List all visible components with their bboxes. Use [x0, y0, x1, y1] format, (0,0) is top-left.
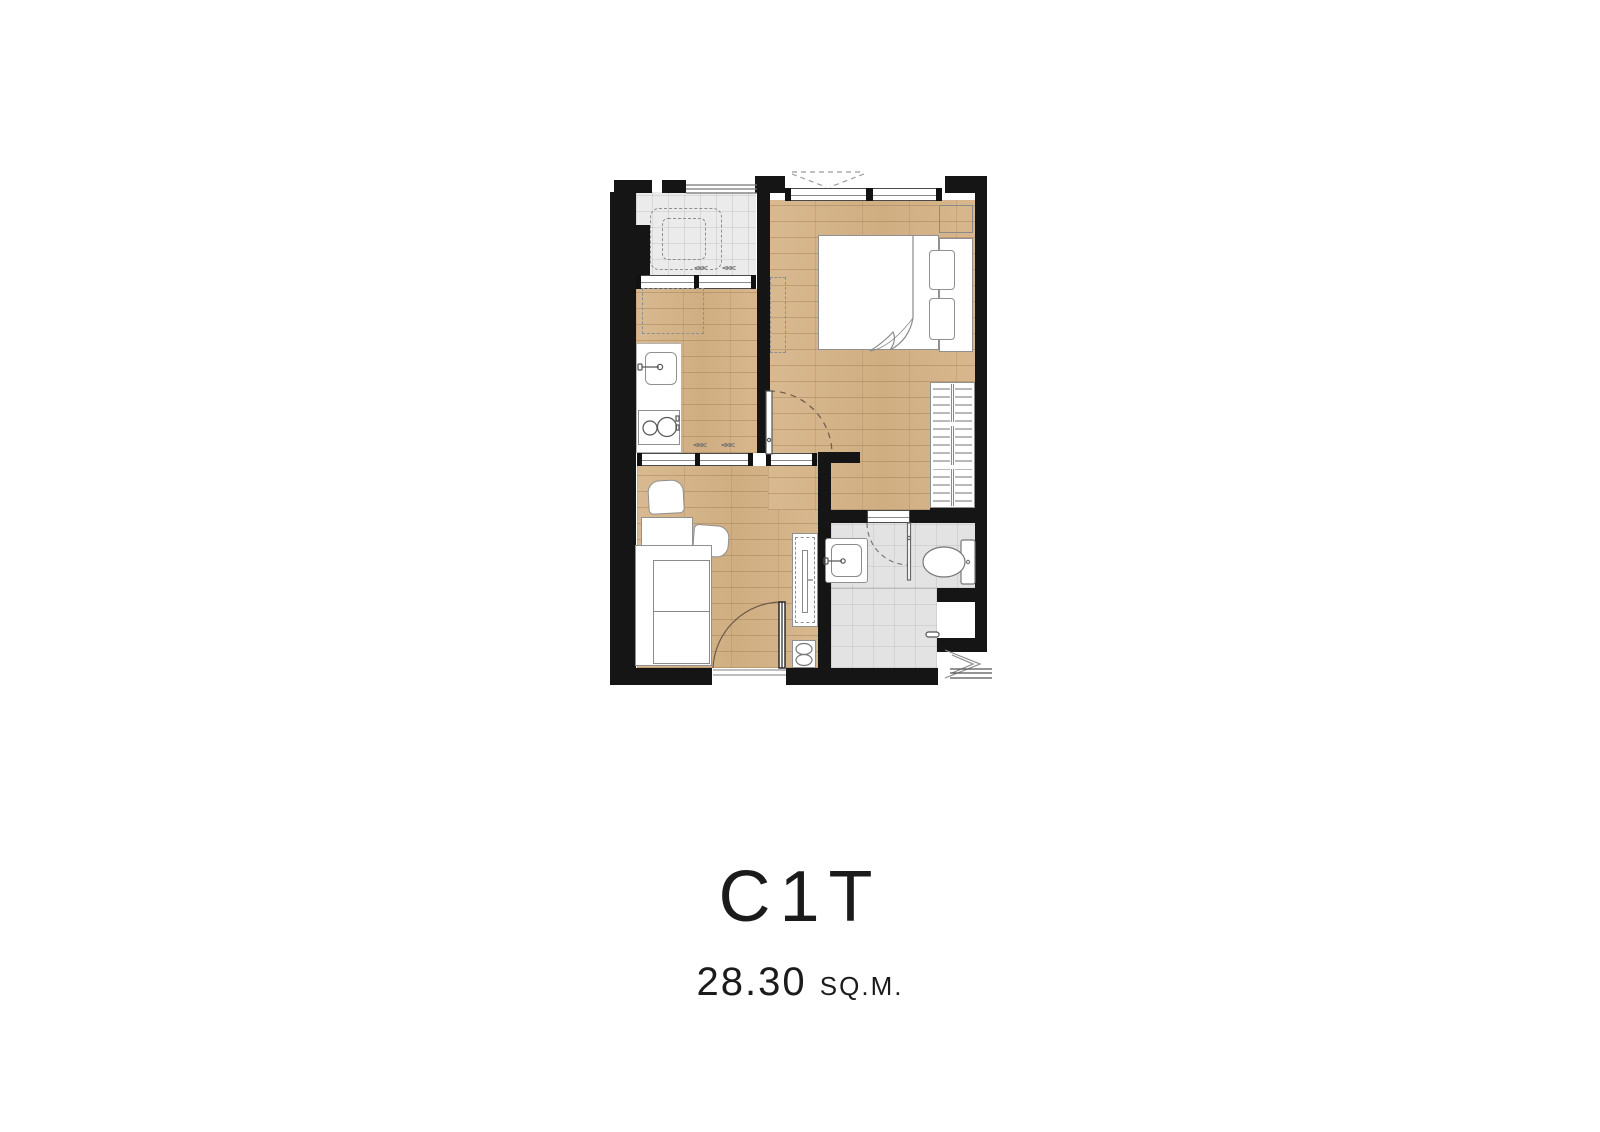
pillow-icon [929, 250, 955, 290]
area-value: 28.30 [697, 960, 807, 1004]
door-jamb [751, 275, 756, 289]
wall-niche-top [937, 588, 987, 602]
wardrobe-hangers [955, 386, 972, 504]
door-jamb [695, 453, 700, 466]
door-jamb [766, 453, 771, 466]
bathroom-doorway [867, 510, 910, 523]
wall-corridor-stub [818, 452, 860, 463]
wall-bedroom-divider [757, 190, 770, 453]
caption-block: C1T 28.30 SQ.M. [0, 856, 1600, 1005]
sofa-cushion [653, 560, 710, 612]
sliding-direction-icon: <<< [721, 443, 733, 449]
window-jamb [866, 188, 873, 201]
door-jamb [694, 275, 699, 289]
hanger-gap [933, 422, 972, 426]
ac-indoor-unit-icon [770, 277, 786, 353]
unit-name: C1T [0, 856, 1600, 938]
wall-bathroom-top-left [831, 510, 867, 523]
door-jamb [637, 453, 642, 466]
wall-bottom-left [610, 668, 712, 685]
wall-top-balcony-2 [662, 180, 686, 193]
wall-wardrobe-bottom [930, 507, 987, 523]
door-jamb [812, 453, 817, 466]
stove-icon [638, 410, 680, 445]
hanger-gap [933, 465, 972, 469]
entrance-arrow-icon [945, 650, 980, 678]
wall-bottom-right [786, 668, 938, 685]
shower-floor [831, 588, 937, 668]
door-jamb [748, 453, 753, 466]
bed-icon [818, 235, 939, 350]
window-jamb [785, 188, 791, 201]
unit-area: 28.30 SQ.M. [0, 960, 1600, 1005]
sliding-direction-icon: <<< [693, 443, 705, 449]
bathroom-sink-basin [831, 544, 862, 577]
tv-icon [802, 550, 808, 613]
bedroom-doorway [766, 453, 817, 466]
overhead-cabinet-icon [642, 288, 704, 334]
nightstand-icon [939, 205, 973, 233]
awning-window-icon [792, 172, 864, 187]
wall-top-balcony-1 [614, 180, 652, 193]
wardrobe-rail [951, 384, 954, 506]
window-jamb [936, 188, 942, 201]
wardrobe-hangers [933, 386, 950, 504]
chair-icon [647, 479, 685, 515]
ac-condenser-inner [662, 218, 706, 260]
kitchen-sink-icon [645, 352, 677, 385]
entrance-threshold [950, 669, 992, 678]
sliding-direction-icon: <<< [722, 266, 734, 272]
bedroom-window [785, 188, 942, 201]
entry-niche [937, 602, 975, 638]
wall-right [975, 176, 987, 622]
wall-niche-bottom [937, 638, 987, 652]
sofa-cushion [653, 611, 710, 664]
wall-balcony-shaft [610, 225, 650, 277]
door-jamb [636, 275, 641, 289]
pillow-icon [929, 298, 955, 340]
area-unit: SQ.M. [820, 971, 904, 1001]
floor-plan: <<< <<< <<< <<< [600, 170, 990, 690]
cabinet-icon [792, 640, 816, 668]
floor-plan-page: <<< <<< <<< <<< [0, 0, 1600, 1132]
